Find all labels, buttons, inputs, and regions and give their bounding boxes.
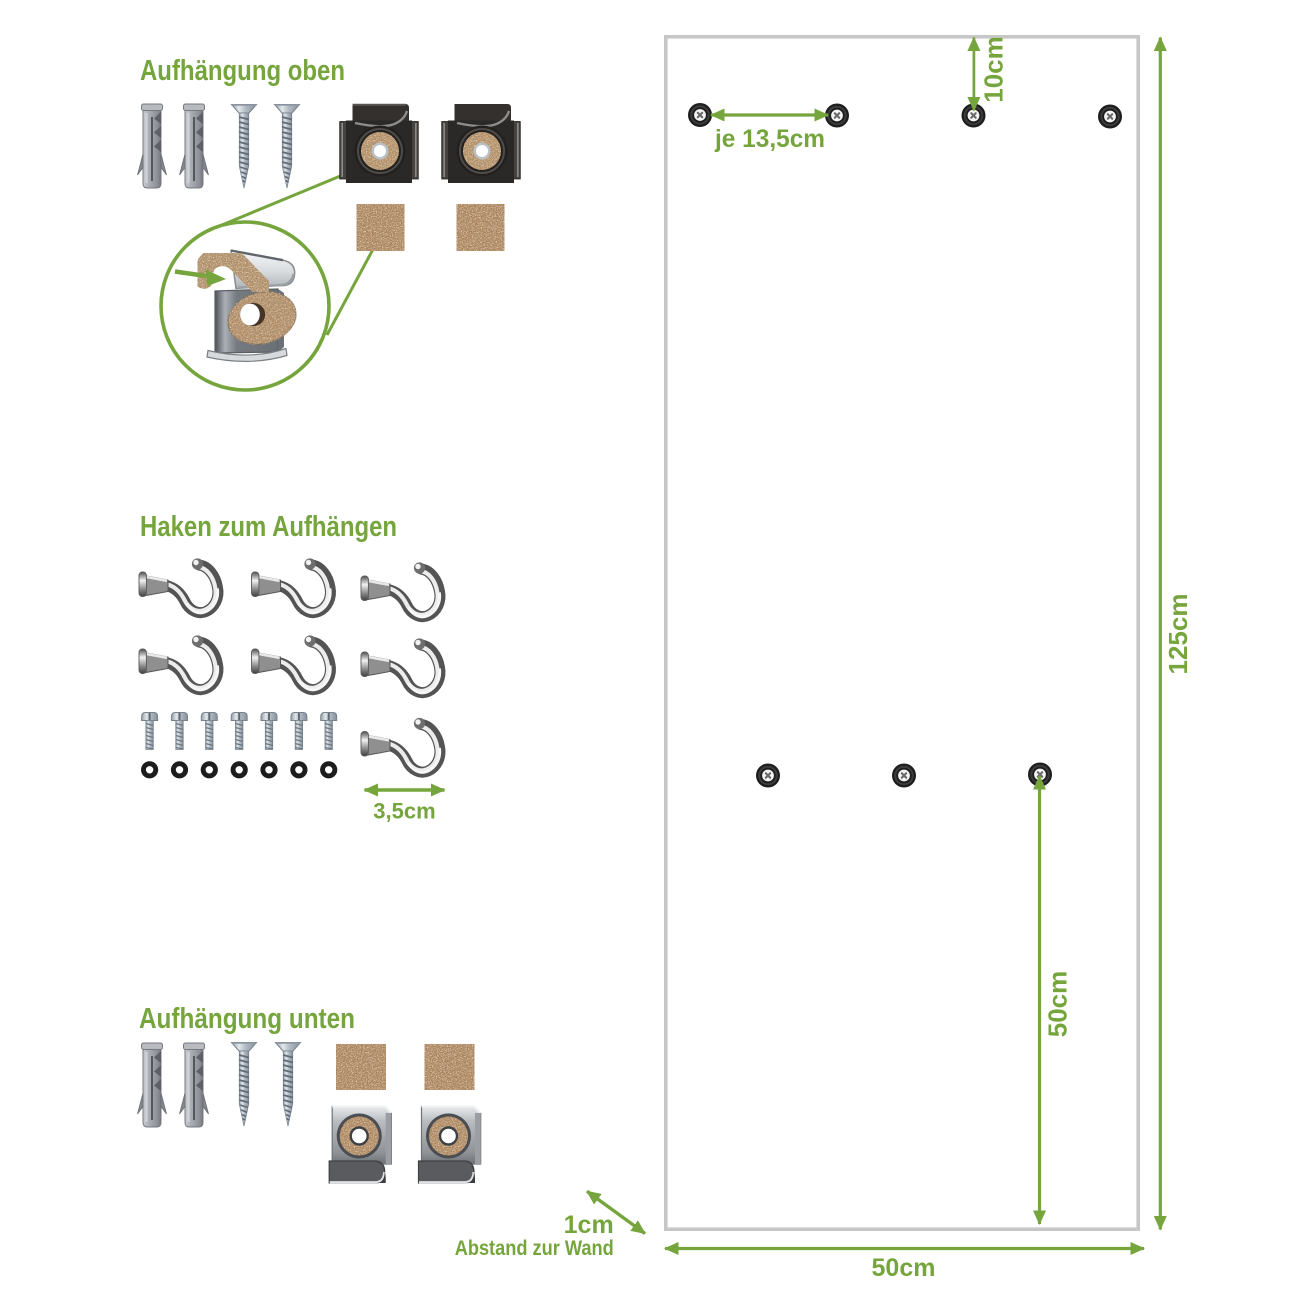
svg-text:je 13,5cm: je 13,5cm <box>714 125 825 153</box>
svg-text:10cm: 10cm <box>979 36 1009 103</box>
svg-text:Aufhängung oben: Aufhängung oben <box>140 55 345 87</box>
svg-text:50cm: 50cm <box>1043 971 1073 1038</box>
svg-text:Aufhängung unten: Aufhängung unten <box>139 1003 355 1035</box>
svg-text:125cm: 125cm <box>1163 594 1193 675</box>
svg-text:Haken zum Aufhängen: Haken zum Aufhängen <box>140 511 397 543</box>
svg-text:1cm: 1cm <box>564 1211 614 1239</box>
svg-text:50cm: 50cm <box>872 1254 936 1282</box>
svg-text:Abstand zur Wand: Abstand zur Wand <box>455 1237 614 1260</box>
svg-text:3,5cm: 3,5cm <box>373 799 435 824</box>
